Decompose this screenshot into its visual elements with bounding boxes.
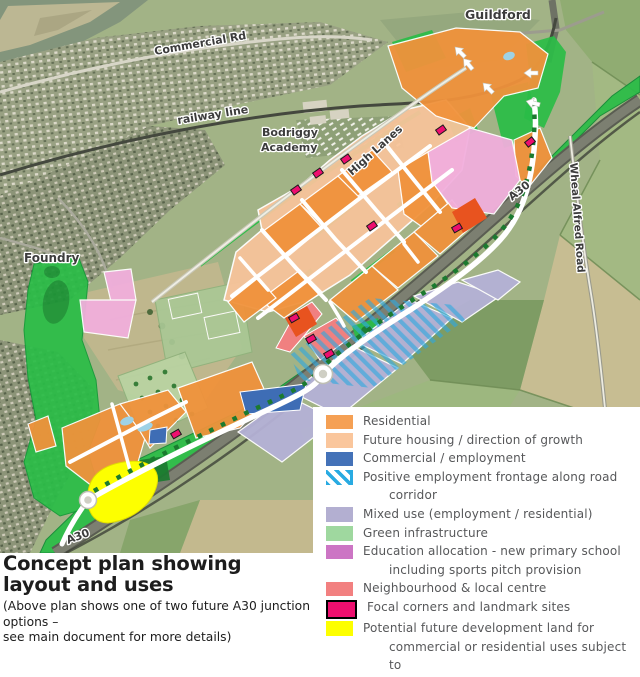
legend-swatch-residential [326,415,353,430]
legend-label: Residential [363,412,431,431]
subtitle-line: see main document for more details) [3,630,315,646]
legend-item-employment-frontage: Positive employment frontage along road … [326,468,640,505]
page-title: Concept plan showing layout and uses [3,553,315,595]
label-academy: Academy [261,141,317,154]
legend-label: Focal corners and landmark sites [367,598,570,617]
page-subtitle: (Above plan shows one of two future A30 … [3,599,315,646]
legend-swatch-education [326,545,353,560]
legend-item-future-housing: Future housing / direction of growth [326,431,640,450]
legend-label: commercial or residential uses subject t… [389,638,640,675]
legend-swatch-future-housing [326,433,353,448]
label-guildford: Guildford [465,7,531,22]
legend-item-mixed-use: Mixed use (employment / residential) [326,505,640,524]
label-bodriggy: Bodriggy [262,126,318,139]
legend-label: Mixed use (employment / residential) [363,505,593,524]
concept-plan-page: Guildford Commercial Rd railway line Bod… [0,0,640,677]
legend-swatch-commercial [326,452,353,467]
legend-item-focal-corners: Focal corners and landmark sites [326,598,640,619]
legend-swatch-green-infrastructure [326,526,353,541]
legend-item-neighbourhood-centre: Neighbourhood & local centre [326,579,640,598]
legend-item-commercial: Commercial / employment [326,449,640,468]
legend-item-green-infrastructure: Green infrastructure [326,524,640,543]
legend-label: Education allocation - new primary schoo… [363,542,621,561]
legend-label: Commercial / employment [363,449,526,468]
legend-swatch-neighbourhood-centre [326,582,353,597]
legend-label: Green infrastructure [363,524,488,543]
legend-swatch-focal-corners [326,600,357,619]
legend-swatch-employment-frontage [326,470,353,485]
legend-label: Neighbourhood & local centre [363,579,546,598]
legend-label: including sports pitch provision [389,561,621,580]
legend-label: corridor [389,486,617,505]
map-legend: Residential Future housing / direction o… [313,407,640,677]
title-block: Concept plan showing layout and uses (Ab… [3,553,315,646]
legend-swatch-mixed-use [326,507,353,522]
legend-swatch-potential-development [326,621,353,636]
legend-label: Potential future development land for [363,619,640,638]
subtitle-line: (Above plan shows one of two future A30 … [3,599,315,630]
legend-label: Positive employment frontage along road [363,468,617,487]
label-foundry: Foundry [24,251,80,265]
legend-item-potential-development: Potential future development land for co… [326,619,640,677]
legend-item-residential: Residential [326,412,640,431]
legend-item-education: Education allocation - new primary schoo… [326,542,640,579]
legend-label: Future housing / direction of growth [363,431,583,450]
